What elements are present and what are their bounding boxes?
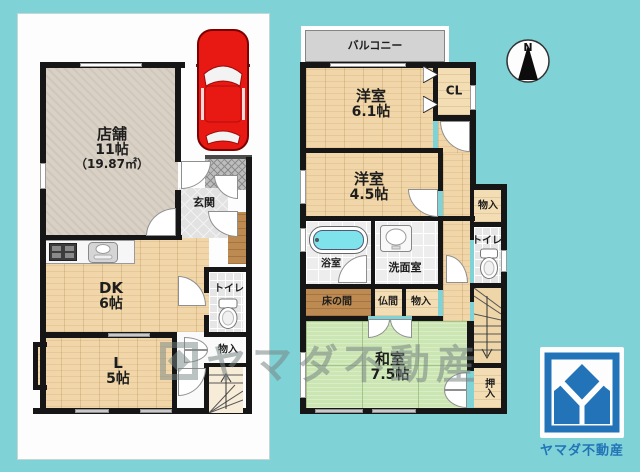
dk-size: 6帖 <box>99 297 123 313</box>
watermark-logo-icon <box>160 342 198 380</box>
wall <box>438 221 443 290</box>
bedroom1-size: 6.1帖 <box>352 105 391 121</box>
wall <box>205 155 252 159</box>
wall <box>501 184 507 414</box>
car-icon <box>196 28 250 152</box>
living-size: 5帖 <box>106 372 130 388</box>
window <box>372 409 416 413</box>
wall <box>175 62 181 162</box>
window <box>300 170 306 204</box>
window <box>140 409 172 413</box>
living-label: L 5帖 <box>106 355 130 387</box>
bedroom1-label: 洋室 6.1帖 <box>352 88 391 120</box>
bedroom2-name: 洋室 <box>350 171 389 188</box>
compass-n-label: N <box>523 41 532 54</box>
balcony-slider <box>330 63 406 67</box>
sliding-opening <box>108 333 150 337</box>
wall <box>204 268 209 293</box>
window <box>470 85 476 110</box>
balcony-label: バルコニー <box>348 40 403 52</box>
bedroom1-name: 洋室 <box>352 88 391 105</box>
toilet2-label: トイレ <box>472 235 502 246</box>
dk-label: DK 6帖 <box>99 280 123 312</box>
washbasin-icon <box>380 225 412 252</box>
wall <box>303 216 475 221</box>
closet-folding-door-icon <box>423 96 438 113</box>
butsuma-label: 仏間 <box>378 296 398 307</box>
dk-name: DK <box>99 280 123 297</box>
company-logo-text: ヤマダ不動産 <box>540 445 624 460</box>
tokonoma-label: 床の間 <box>322 296 352 307</box>
cl-label: CL <box>446 84 462 97</box>
window <box>300 228 306 252</box>
shop-name: 店舗 <box>75 126 149 143</box>
toilet-icon <box>478 248 500 280</box>
window <box>40 163 46 189</box>
wall <box>303 148 443 153</box>
watermark: ヤマダ不動産 <box>160 332 482 390</box>
bedroom2-label: 洋室 4.5帖 <box>350 171 389 203</box>
window <box>80 63 142 67</box>
wall <box>402 289 406 316</box>
kitchen-sink-icon <box>88 242 118 263</box>
wall <box>371 289 375 316</box>
watermark-text: ヤマダ不動産 <box>206 332 482 390</box>
living-name: L <box>106 355 130 372</box>
floorplan-image: 店舗 11帖 （19.87㎡） 玄関 DK 6帖 L 5帖 トイレ 物入 バルコ… <box>0 0 640 472</box>
bathtub-icon <box>309 226 368 254</box>
floor2-hall-mid <box>443 153 470 221</box>
storage-lower-label: 物入 <box>411 296 431 307</box>
storage-upper-label: 物入 <box>478 200 498 211</box>
wall <box>438 153 443 191</box>
window <box>75 409 109 413</box>
compass-icon: N <box>504 32 552 84</box>
stove-icon <box>49 243 77 261</box>
wall <box>470 62 476 185</box>
wall <box>371 221 375 284</box>
wall <box>40 62 46 240</box>
closet-folding-door-icon <box>423 66 438 83</box>
window <box>501 250 507 272</box>
window <box>315 409 363 413</box>
bedroom2-size: 4.5帖 <box>350 188 389 204</box>
genkan-label: 玄関 <box>193 197 215 209</box>
wall <box>412 316 443 321</box>
wall <box>303 316 368 321</box>
toilet-icon <box>216 298 240 330</box>
company-logo-icon <box>540 347 624 438</box>
shop-label: 店舗 11帖 （19.87㎡） <box>75 126 149 172</box>
washroom-label: 洗面室 <box>389 262 422 274</box>
wall <box>33 342 38 390</box>
wall <box>470 190 474 240</box>
oshiire-label: 押入 <box>482 378 493 398</box>
wall <box>470 222 501 227</box>
bath-label: 浴室 <box>321 258 341 269</box>
toilet1-label: トイレ <box>214 283 244 294</box>
shop-area: （19.87㎡） <box>75 159 149 172</box>
company-logo <box>540 347 624 438</box>
wall <box>204 267 249 272</box>
